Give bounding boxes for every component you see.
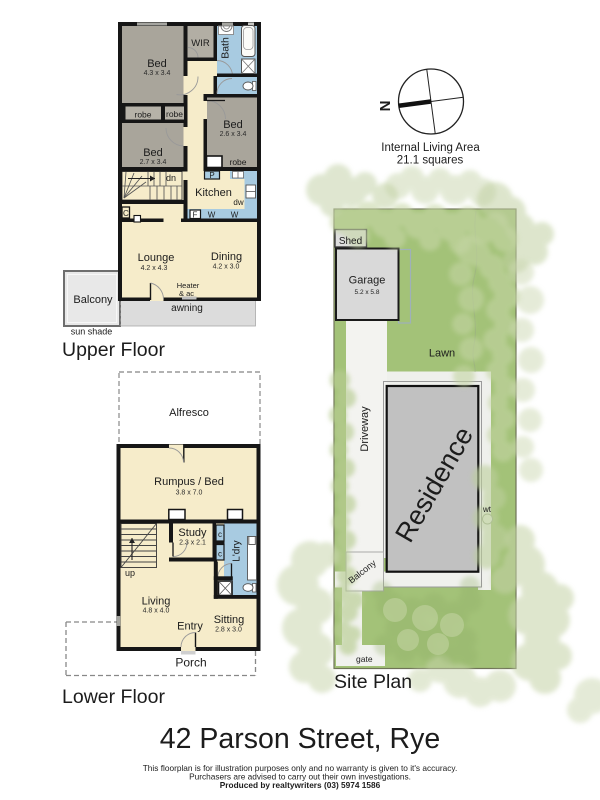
svg-text:C: C (123, 209, 129, 218)
svg-text:c: c (218, 530, 222, 539)
svg-text:Living: Living (142, 596, 171, 608)
svg-text:3.8 x 7.0: 3.8 x 7.0 (176, 490, 203, 497)
svg-text:awning: awning (171, 303, 203, 314)
svg-text:L'dry: L'dry (232, 540, 243, 561)
svg-text:Alfresco: Alfresco (169, 407, 209, 419)
svg-text:21.1 squares: 21.1 squares (397, 155, 464, 167)
svg-text:Upper Floor: Upper Floor (62, 339, 165, 361)
svg-text:Entry: Entry (177, 621, 203, 633)
svg-text:4.8 x 4.0: 4.8 x 4.0 (143, 608, 170, 615)
svg-text:W: W (208, 211, 216, 220)
svg-text:dn: dn (166, 173, 176, 183)
svg-text:Internal Living Area: Internal Living Area (381, 142, 480, 154)
svg-text:Lawn: Lawn (429, 348, 455, 360)
svg-text:robe: robe (229, 157, 246, 167)
svg-text:F: F (193, 211, 198, 220)
svg-text:Balcony: Balcony (73, 294, 113, 306)
svg-text:Lower Floor: Lower Floor (62, 686, 165, 708)
svg-text:Dining: Dining (211, 251, 242, 263)
svg-text:N: N (377, 101, 394, 112)
svg-text:c: c (218, 550, 222, 559)
svg-text:dw: dw (233, 198, 243, 207)
svg-text:4.2 x 3.0: 4.2 x 3.0 (213, 264, 240, 271)
svg-text:5.2 x 5.8: 5.2 x 5.8 (355, 289, 380, 296)
svg-text:P: P (209, 171, 214, 180)
svg-text:Lounge: Lounge (138, 252, 175, 264)
svg-text:Shed: Shed (339, 236, 362, 247)
svg-text:Bed: Bed (143, 147, 163, 159)
svg-text:Sitting: Sitting (214, 614, 245, 626)
svg-text:42 Parson Street, Rye: 42 Parson Street, Rye (160, 723, 440, 755)
svg-text:Study: Study (178, 527, 207, 539)
svg-text:up: up (125, 568, 135, 578)
svg-text:2.8 x 3.0: 2.8 x 3.0 (215, 627, 242, 634)
svg-text:robe: robe (134, 110, 151, 120)
svg-text:Bath: Bath (220, 37, 232, 59)
svg-text:robe: robe (166, 109, 183, 119)
svg-text:wt: wt (482, 505, 492, 514)
svg-text:Rumpus / Bed: Rumpus / Bed (154, 476, 224, 488)
svg-text:4.3 x 3.4: 4.3 x 3.4 (144, 70, 171, 77)
svg-text:Produced by realtywriters (03): Produced by realtywriters (03) 5974 1586 (220, 780, 381, 790)
svg-text:Bed: Bed (147, 58, 167, 70)
svg-text:Site Plan: Site Plan (334, 671, 412, 693)
svg-text:WIR: WIR (191, 38, 210, 49)
svg-text:2.6 x 3.4: 2.6 x 3.4 (220, 131, 247, 138)
svg-text:Porch: Porch (175, 656, 206, 670)
svg-text:Bed: Bed (223, 119, 243, 131)
svg-text:4.2 x 4.3: 4.2 x 4.3 (141, 265, 168, 272)
svg-text:Kitchen: Kitchen (195, 187, 232, 199)
svg-text:gate: gate (356, 654, 373, 664)
svg-text:sun shade: sun shade (71, 327, 113, 337)
svg-text:2.3 x 2.1: 2.3 x 2.1 (179, 540, 206, 547)
svg-text:2.7 x 3.4: 2.7 x 3.4 (140, 159, 167, 166)
svg-text:W: W (231, 211, 239, 220)
svg-text:Garage: Garage (349, 275, 386, 287)
svg-text:Driveway: Driveway (359, 406, 371, 452)
